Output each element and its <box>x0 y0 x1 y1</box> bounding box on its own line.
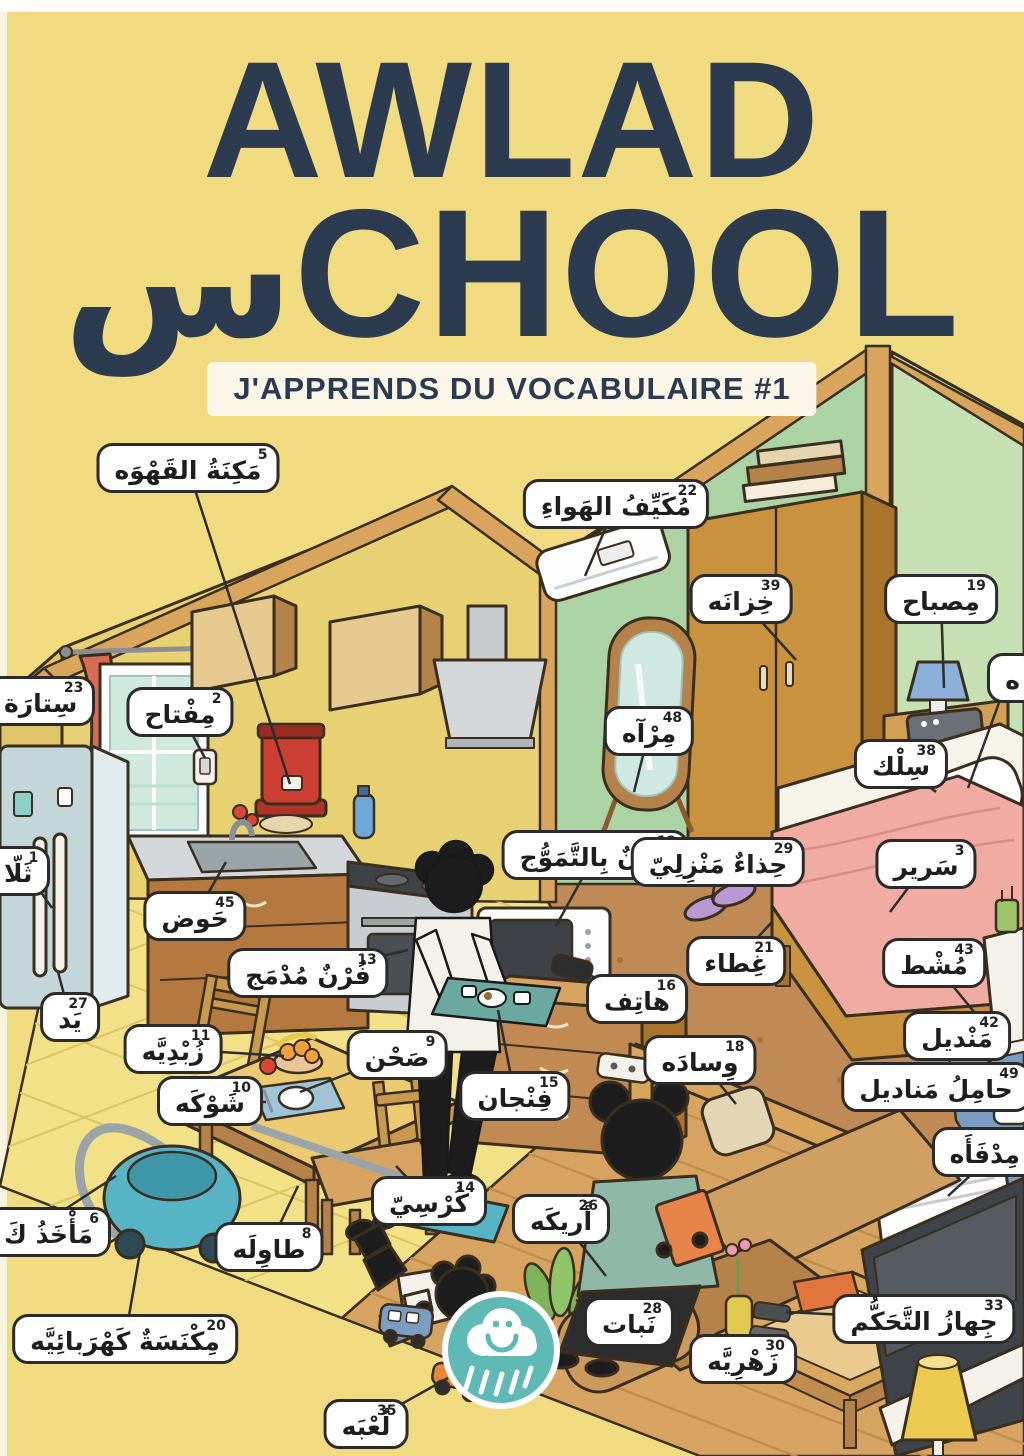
vocab-number: 13 <box>357 953 376 967</box>
vocab-label-9: 9صَحْن <box>347 1030 448 1080</box>
vocab-number: 38 <box>917 744 936 758</box>
vocab-number: 11 <box>191 1029 210 1043</box>
vocab-label-22: 22مُكَيِّفُ الهَواءِ <box>523 479 709 529</box>
vocab-number: 21 <box>754 941 773 955</box>
vocab-number: 6 <box>89 1212 99 1226</box>
vocab-label-29: 29حِذاءٌ مَنْزِلِيّ <box>631 837 805 887</box>
vocab-word: حِذاءٌ مَنْزِلِيّ <box>649 850 787 879</box>
vocab-label-1: 1ثَلّا <box>0 846 50 896</box>
pencil-cup <box>996 900 1018 932</box>
bedside-lamp <box>908 662 968 700</box>
vocab-label-43: 43مُشْط <box>882 938 986 988</box>
vocab-label-39: 39خِزانَه <box>690 574 793 624</box>
vocab-number: 10 <box>232 1081 251 1095</box>
vocab-number: 27 <box>68 997 87 1011</box>
vocab-label-27: 27يَد <box>40 992 100 1042</box>
vocab-label-6: 6مَأْخَذُ كَ <box>0 1207 111 1257</box>
vocab-label-8: 8طاوِلَه <box>214 1222 323 1272</box>
vocab-label-10: 10شَوْكَه <box>157 1076 263 1126</box>
vocab-label-15: 15فِنْجان <box>459 1071 570 1121</box>
vocab-number: 2 <box>212 692 222 706</box>
vocab-label-18: 18وِسادَه <box>643 1035 756 1085</box>
vocab-number: 48 <box>663 711 682 725</box>
vocab-label-23: 23سِتارَة <box>0 676 95 726</box>
cup <box>514 992 530 1004</box>
vocab-number: 23 <box>64 681 83 695</box>
cup <box>462 986 476 997</box>
vocab-number: 49 <box>999 1067 1018 1081</box>
vocab-label-35: 35لُعْبَه <box>324 1399 409 1449</box>
vocab-number: 30 <box>765 1339 784 1353</box>
vocab-word: ه <box>1005 666 1020 695</box>
vocab-label-3: 3سَرير <box>875 839 976 889</box>
vocab-number: 18 <box>725 1040 744 1054</box>
book-cover: AWLAD سCHOOL J'APPRENDS DU VOCABULAIRE #… <box>0 0 1024 1456</box>
sink <box>188 842 316 872</box>
vocab-word: مَأْخَذُ كَ <box>4 1220 93 1249</box>
apple <box>260 1058 276 1074</box>
vocab-label-p35: ه <box>987 653 1024 703</box>
vocab-label-49: 49حامِلُ مَناديل <box>841 1062 1024 1112</box>
vocab-number: 15 <box>539 1076 558 1090</box>
water-bottle <box>354 794 374 838</box>
vocab-label-38: 38سِلْك <box>854 739 948 789</box>
vocab-number: 45 <box>215 896 234 910</box>
vase <box>726 1296 752 1338</box>
vocab-label-16: 16هاتِف <box>586 974 688 1024</box>
vocab-word: سَرير <box>893 852 958 881</box>
vocab-number: 19 <box>966 579 985 593</box>
vocab-label-5: 5مَكِنَةُ القَهْوَه <box>97 443 280 493</box>
vocab-label-45: 45حَوض <box>143 891 246 941</box>
vocab-number: 39 <box>761 579 780 593</box>
vocab-word: مِكْنَسَةٌ كَهْرَبائِيَّه <box>30 1327 220 1356</box>
vocab-label-11: 11زُبْدِيَّه <box>124 1024 223 1074</box>
vocab-label-28: 28نَبات <box>584 1297 674 1347</box>
vocab-label-48: 48مِرْآه <box>604 706 694 756</box>
vocab-label-13: 13فُرْنٌ مُدْمَج <box>227 948 388 998</box>
vocab-word: مَكِنَةُ القَهْوَه <box>115 456 262 485</box>
vocab-number: 35 <box>377 1404 396 1418</box>
vocab-label-14: 14كُرْسِيّ <box>371 1176 487 1226</box>
vocab-label-30: 30زَهْرِيَّه <box>689 1334 797 1384</box>
cloud-rain-logo-icon <box>445 1294 557 1406</box>
vocab-number: 29 <box>774 842 793 856</box>
vocab-word: مِدْفَأَه <box>950 1140 1020 1169</box>
vocab-number: 43 <box>954 943 973 957</box>
vocab-word: جِهازُ التَّحَكُّم <box>850 1307 997 1336</box>
vocab-number: 28 <box>643 1302 662 1316</box>
vocab-label-19: 19مِصباح <box>884 574 998 624</box>
vocab-word: مِفْتاح <box>144 700 215 729</box>
vocab-label-21: 21غِطاء <box>686 936 786 986</box>
vocab-number: 26 <box>579 1199 598 1213</box>
vocab-number: 5 <box>258 448 268 462</box>
vocab-word: طاوِلَه <box>232 1235 305 1264</box>
vocab-word: حامِلُ مَناديل <box>859 1075 1013 1104</box>
vocab-word: صَحْن <box>365 1043 430 1072</box>
light-switch <box>194 750 216 784</box>
vocab-word: فُرْنٌ مُدْمَج <box>245 961 370 990</box>
vocab-label-p25: مِدْفَأَه <box>932 1127 1024 1177</box>
vocab-number: 8 <box>302 1227 312 1241</box>
vocab-number: 16 <box>656 979 675 993</box>
book-subtitle: J'APPRENDS DU VOCABULAIRE #1 <box>207 362 816 416</box>
vocab-number: 22 <box>678 484 697 498</box>
vocab-number: 14 <box>456 1181 475 1195</box>
arabic-seen-letter: س <box>63 182 294 376</box>
vocab-number: 33 <box>984 1299 1003 1313</box>
vocab-number: 9 <box>426 1035 436 1049</box>
book-title-line2: سCHOOL <box>0 182 1024 364</box>
vocab-label-20: 20مِكْنَسَةٌ كَهْرَبائِيَّه <box>12 1314 238 1364</box>
vocab-number: 42 <box>979 1016 998 1030</box>
books-stack <box>743 441 844 502</box>
vocab-number: 3 <box>955 844 965 858</box>
vocab-label-42: 42مَنْديل <box>903 1011 1011 1061</box>
vocab-label-33: 33جِهازُ التَّحَكُّم <box>832 1294 1015 1344</box>
vocab-label-26: 26أَريكَه <box>512 1194 610 1244</box>
vocab-number: 20 <box>206 1319 225 1333</box>
vocab-word: مُكَيِّفُ الهَواءِ <box>541 492 691 521</box>
vocab-number: 1 <box>29 851 39 865</box>
vocab-label-2: 2مِفْتاح <box>126 687 233 737</box>
